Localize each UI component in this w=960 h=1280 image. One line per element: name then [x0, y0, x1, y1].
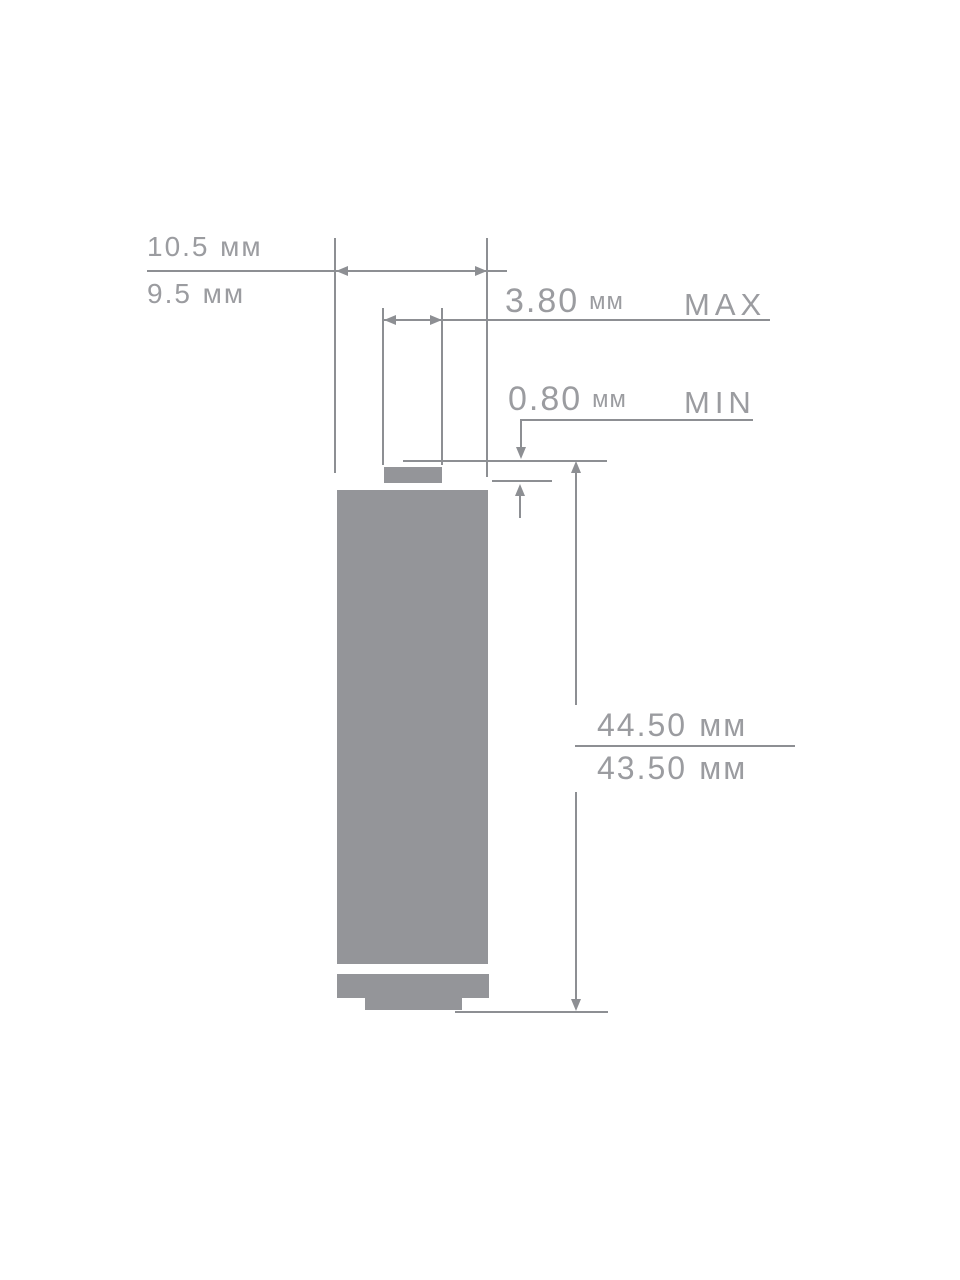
battery-dimension-diagram: 10.5мм 9.5мм 3.80мм MAX 0.80мм MIN 44.50…: [0, 0, 960, 1280]
total-height-min-value: 43.50: [597, 750, 687, 786]
battery-negative-terminal: [365, 998, 462, 1010]
button-height-unit: мм: [592, 386, 627, 413]
body-diameter-min-unit: мм: [203, 278, 246, 309]
extension-line-button-left: [382, 308, 384, 465]
tail-line-button-height-up: [519, 492, 521, 518]
total-height-max-value: 44.50: [597, 707, 687, 743]
button-diameter-value: 3.80: [505, 282, 579, 320]
level-line-battery-bottom: [455, 1011, 608, 1013]
arrowhead-total-height-bottom: [571, 999, 581, 1011]
button-diameter-unit: мм: [589, 288, 624, 315]
button-diameter-qualifier: MAX: [684, 289, 766, 320]
dimension-line-total-height-upper: [575, 470, 577, 705]
arrowhead-button-height-down: [516, 447, 526, 459]
button-height-qualifier: MIN: [684, 387, 756, 418]
arrowhead-body-diameter-right: [475, 266, 487, 276]
body-diameter-max-value: 10.5: [147, 231, 210, 262]
level-line-body-top: [492, 480, 552, 482]
battery-body: [337, 490, 488, 964]
leader-drop-button-height: [520, 419, 522, 447]
total-height-min-label: 43.50мм: [597, 752, 747, 784]
body-diameter-min-label: 9.5мм: [147, 280, 245, 308]
total-height-max-label: 44.50мм: [597, 709, 747, 741]
body-diameter-max-label: 10.5мм: [147, 233, 263, 261]
body-diameter-min-value: 9.5: [147, 278, 192, 309]
extension-line-button-right: [441, 308, 443, 465]
body-diameter-max-unit: мм: [220, 231, 263, 262]
button-height-value: 0.80: [508, 380, 582, 418]
fraction-bar-total-height: [575, 745, 795, 747]
total-height-max-unit: мм: [699, 707, 747, 743]
arrowhead-button-diameter-left: [384, 315, 396, 325]
button-diameter-label: 3.80мм: [505, 284, 624, 318]
battery-positive-button: [384, 467, 442, 483]
arrowhead-body-diameter-left: [336, 266, 348, 276]
battery-bottom-ring: [337, 974, 489, 998]
arrowhead-button-diameter-right: [430, 315, 442, 325]
dimension-line-total-height-lower: [575, 792, 577, 1002]
total-height-min-unit: мм: [699, 750, 747, 786]
button-height-label: 0.80мм: [508, 382, 627, 416]
dimension-line-body-diameter: [147, 270, 507, 272]
